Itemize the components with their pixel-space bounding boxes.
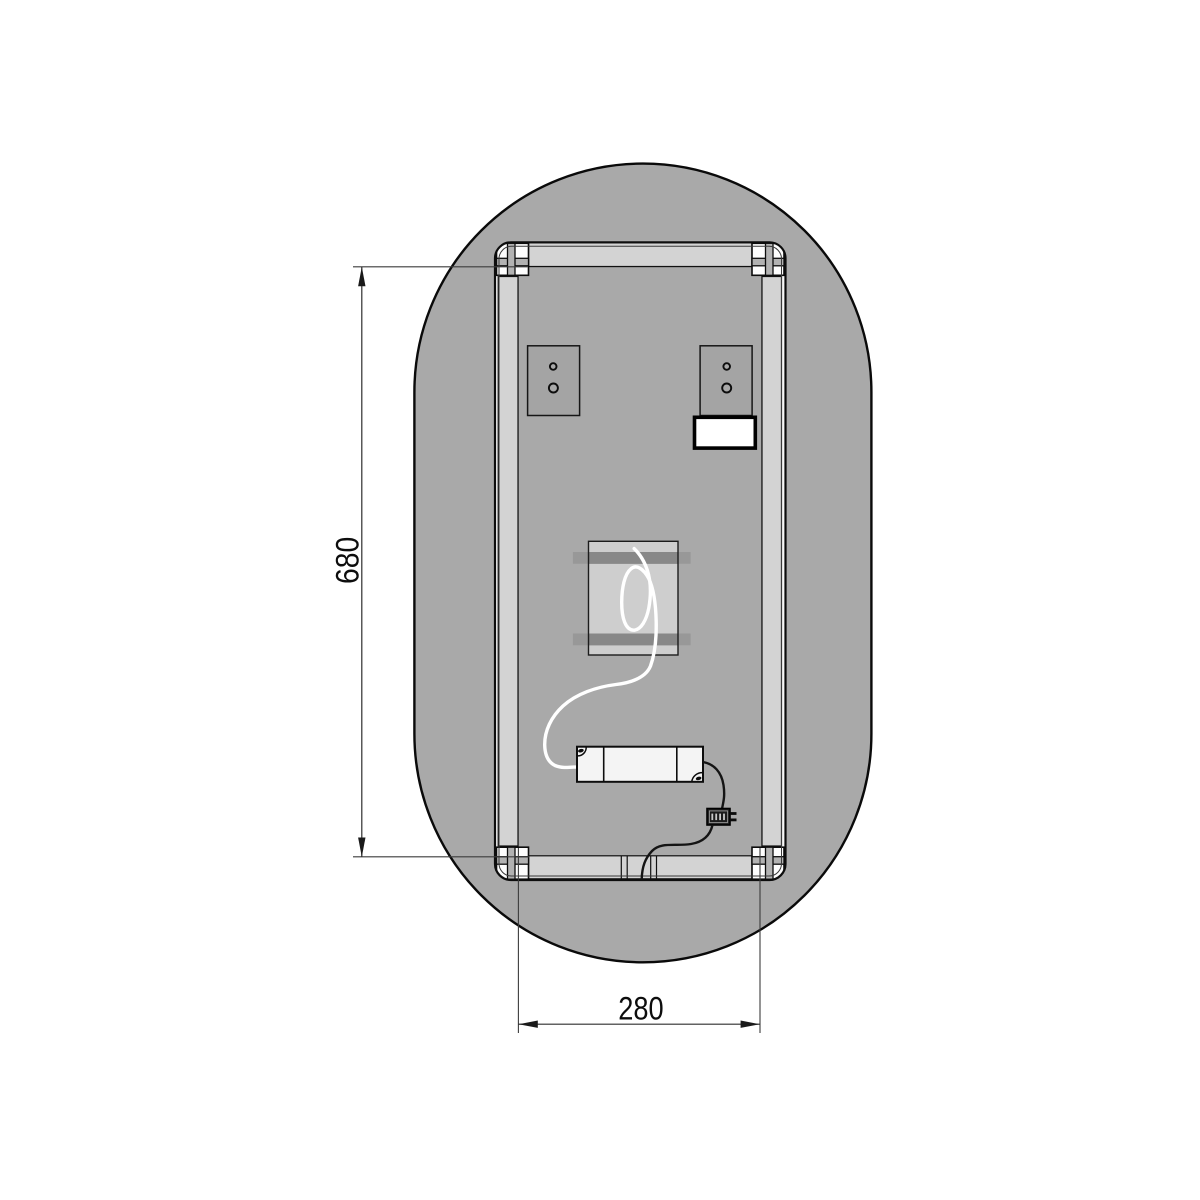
svg-text:680: 680: [330, 537, 366, 584]
svg-text:280: 280: [618, 991, 663, 1027]
